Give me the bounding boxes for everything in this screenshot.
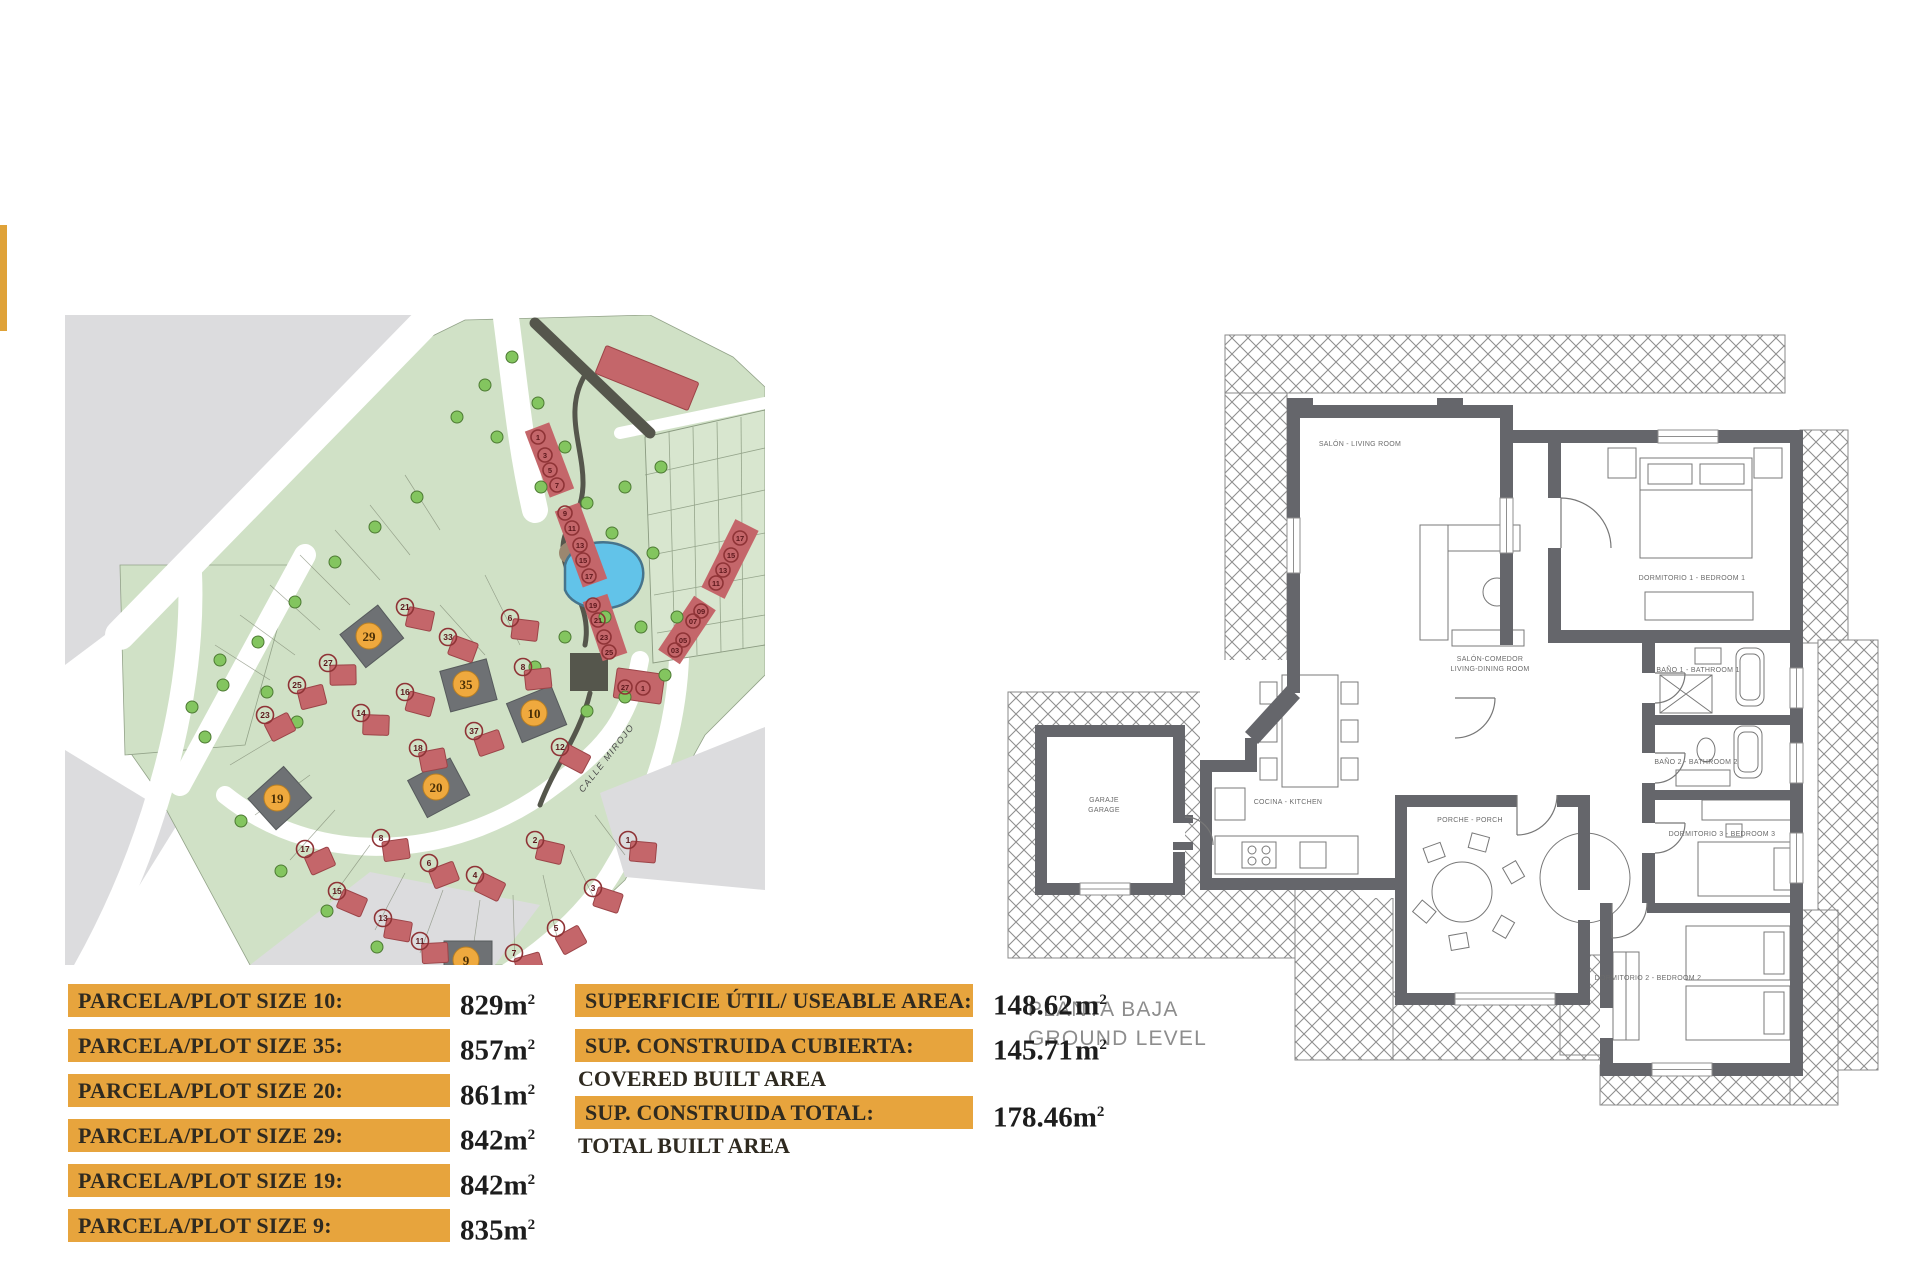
tree-icon xyxy=(252,636,264,648)
area-row-label: SUPERFICIE ÚTIL/ USEABLE AREA: xyxy=(575,984,973,1017)
plot-number: 15 xyxy=(332,886,342,896)
plot-number: 12 xyxy=(555,742,565,752)
tree-icon xyxy=(671,611,683,623)
plot-number: 1 xyxy=(626,835,631,845)
house-icon xyxy=(593,886,624,913)
plot-number: 9 xyxy=(563,509,567,518)
plot-row-label: PARCELA/PLOT SIZE 35: xyxy=(68,1029,450,1062)
plot-number: 8 xyxy=(521,662,526,672)
room-label-salon-comedor-1: SALÓN-COMEDOR xyxy=(1457,654,1524,663)
plot-number: 17 xyxy=(585,572,593,581)
plot-row-value: 842m2 xyxy=(460,1119,535,1152)
area-row-label: SUP. CONSTRUIDA CUBIERTA: xyxy=(575,1029,973,1062)
plot-number: 18 xyxy=(413,743,423,753)
room-label-dormitorio1: DORMITORIO 1 - BEDROOM 1 xyxy=(1639,575,1746,582)
house-icon xyxy=(511,618,539,641)
plot-number: 15 xyxy=(579,556,587,565)
tree-icon xyxy=(369,521,381,533)
plot-row-value: 829m2 xyxy=(460,984,535,1017)
plot-number: 13 xyxy=(719,566,727,575)
plot-row-value: 857m2 xyxy=(460,1029,535,1062)
room-label-dormitorio2: DORMITORIO 2 - BEDROOM 2 xyxy=(1595,975,1702,982)
plot-badge-number: 19 xyxy=(271,791,285,806)
area-row-value: 148.62 m2 xyxy=(993,984,1107,1017)
plot-row-label: PARCELA/PLOT SIZE 9: xyxy=(68,1209,450,1242)
plot-row-label: PARCELA/PLOT SIZE 19: xyxy=(68,1164,450,1197)
tree-icon xyxy=(606,527,618,539)
plot-number: 17 xyxy=(300,844,310,854)
room-label-dormitorio3: DORMITORIO 3 - BEDROOM 3 xyxy=(1669,831,1776,838)
house-icon xyxy=(524,668,552,691)
plot-number: 15 xyxy=(727,551,735,560)
room-label-salon: SALÓN - LIVING ROOM xyxy=(1319,439,1401,448)
plot-number: 6 xyxy=(427,858,432,868)
plot-number: 16 xyxy=(400,687,410,697)
plot-number: 23 xyxy=(260,710,270,720)
plot-number: 03 xyxy=(671,646,679,655)
tree-icon xyxy=(451,411,463,423)
tree-icon xyxy=(411,491,423,503)
tree-icon xyxy=(479,379,491,391)
plot-number: 2 xyxy=(533,835,538,845)
house-icon xyxy=(629,841,657,863)
room-label-bano2: BAÑO 2 - BATHROOM 2 xyxy=(1654,757,1737,766)
tree-icon xyxy=(532,397,544,409)
plot-number: 13 xyxy=(378,913,388,923)
tree-icon xyxy=(371,941,383,953)
area-row-value: 178.46m2 xyxy=(993,1096,1104,1129)
room-label-porche: PORCHE - PORCH xyxy=(1437,817,1503,824)
plot-number: 17 xyxy=(736,534,744,543)
tree-icon xyxy=(655,461,667,473)
tree-icon xyxy=(261,686,273,698)
tree-icon xyxy=(235,815,247,827)
tree-icon xyxy=(619,481,631,493)
plot-badge-number: 35 xyxy=(460,677,474,692)
tree-icon xyxy=(329,556,341,568)
plot-number: 11 xyxy=(568,524,576,533)
tree-icon xyxy=(535,481,547,493)
brochure-page: 2935102019921272523336837121614181715131… xyxy=(0,0,1920,1280)
tree-icon xyxy=(559,441,571,453)
plot-badge-number: 9 xyxy=(463,953,470,965)
house-icon xyxy=(383,918,412,942)
plot-number: 25 xyxy=(605,648,613,657)
tree-icon xyxy=(506,351,518,363)
plot-row-label: PARCELA/PLOT SIZE 20: xyxy=(68,1074,450,1107)
tree-icon xyxy=(217,679,229,691)
plot-number: 05 xyxy=(679,636,687,645)
tree-icon xyxy=(581,497,593,509)
tree-icon xyxy=(581,705,593,717)
plot-row-value: 861m2 xyxy=(460,1074,535,1107)
plot-number: 09 xyxy=(697,607,705,616)
tree-icon xyxy=(214,654,226,666)
plot-number: 37 xyxy=(469,726,479,736)
plot-number: 4 xyxy=(473,870,478,880)
plot-number: 3 xyxy=(543,451,547,460)
gold-accent-strip xyxy=(0,225,7,331)
plot-number: 13 xyxy=(576,541,584,550)
room-label-salon-comedor-2: LIVING-DINING ROOM xyxy=(1451,666,1530,673)
plot-number: 14 xyxy=(356,708,366,718)
plot-row-value: 835m2 xyxy=(460,1209,535,1242)
room-label-garaje-2: GARAGE xyxy=(1088,807,1120,814)
plot-row-value: 842m2 xyxy=(460,1164,535,1197)
plot-number: 5 xyxy=(554,923,559,933)
plot-number: 25 xyxy=(292,680,302,690)
plot-number: 6 xyxy=(508,613,513,623)
tree-icon xyxy=(647,547,659,559)
area-row-sublabel: TOTAL BUILT AREA xyxy=(578,1133,790,1159)
area-row-sublabel: COVERED BUILT AREA xyxy=(578,1066,826,1092)
plot-number: 7 xyxy=(555,481,559,490)
house-icon xyxy=(330,665,356,685)
plot-number: 27 xyxy=(323,658,333,668)
tree-icon xyxy=(635,621,647,633)
tree-icon xyxy=(275,865,287,877)
plot-number: 11 xyxy=(416,936,425,946)
tree-icon xyxy=(186,701,198,713)
site-plan-map: 2935102019921272523336837121614181715131… xyxy=(65,315,765,965)
plot-number: 23 xyxy=(600,633,608,642)
house-icon xyxy=(363,715,390,736)
plot-number: 3 xyxy=(591,883,596,893)
tree-icon xyxy=(289,596,301,608)
area-row-value: 145.71 m2 xyxy=(993,1029,1107,1062)
plot-number: 11 xyxy=(712,579,720,588)
house-icon xyxy=(382,838,411,861)
plot-number: 1 xyxy=(641,684,645,693)
plot-number: 21 xyxy=(400,602,410,612)
plot-row-label: PARCELA/PLOT SIZE 10: xyxy=(68,984,450,1017)
room-label-cocina: COCINA - KITCHEN xyxy=(1254,799,1323,806)
plot-number: 07 xyxy=(689,617,697,626)
tree-icon xyxy=(559,631,571,643)
area-row-label: SUP. CONSTRUIDA TOTAL: xyxy=(575,1096,973,1129)
plot-number: 1 xyxy=(536,433,540,442)
plot-number: 27 xyxy=(621,683,629,692)
plot-badge-number: 20 xyxy=(430,780,443,795)
plot-badge-number: 29 xyxy=(363,629,377,644)
plot-number: 8 xyxy=(379,833,384,843)
plot-badge-number: 10 xyxy=(528,706,541,721)
room-label-bano1: BAÑO 1 - BATHROOM 1 xyxy=(1656,665,1739,674)
tree-icon xyxy=(321,905,333,917)
plot-number: 19 xyxy=(589,601,597,610)
plot-number: 33 xyxy=(443,632,453,642)
plot-number: 21 xyxy=(594,616,602,625)
tree-icon xyxy=(491,431,503,443)
plot-row-label: PARCELA/PLOT SIZE 29: xyxy=(68,1119,450,1152)
plot-number: 7 xyxy=(512,948,517,958)
tree-icon xyxy=(659,669,671,681)
house-icon xyxy=(421,942,448,963)
tree-icon xyxy=(199,731,211,743)
room-label-garaje-1: GARAJE xyxy=(1089,797,1119,804)
plot-number: 5 xyxy=(548,466,552,475)
